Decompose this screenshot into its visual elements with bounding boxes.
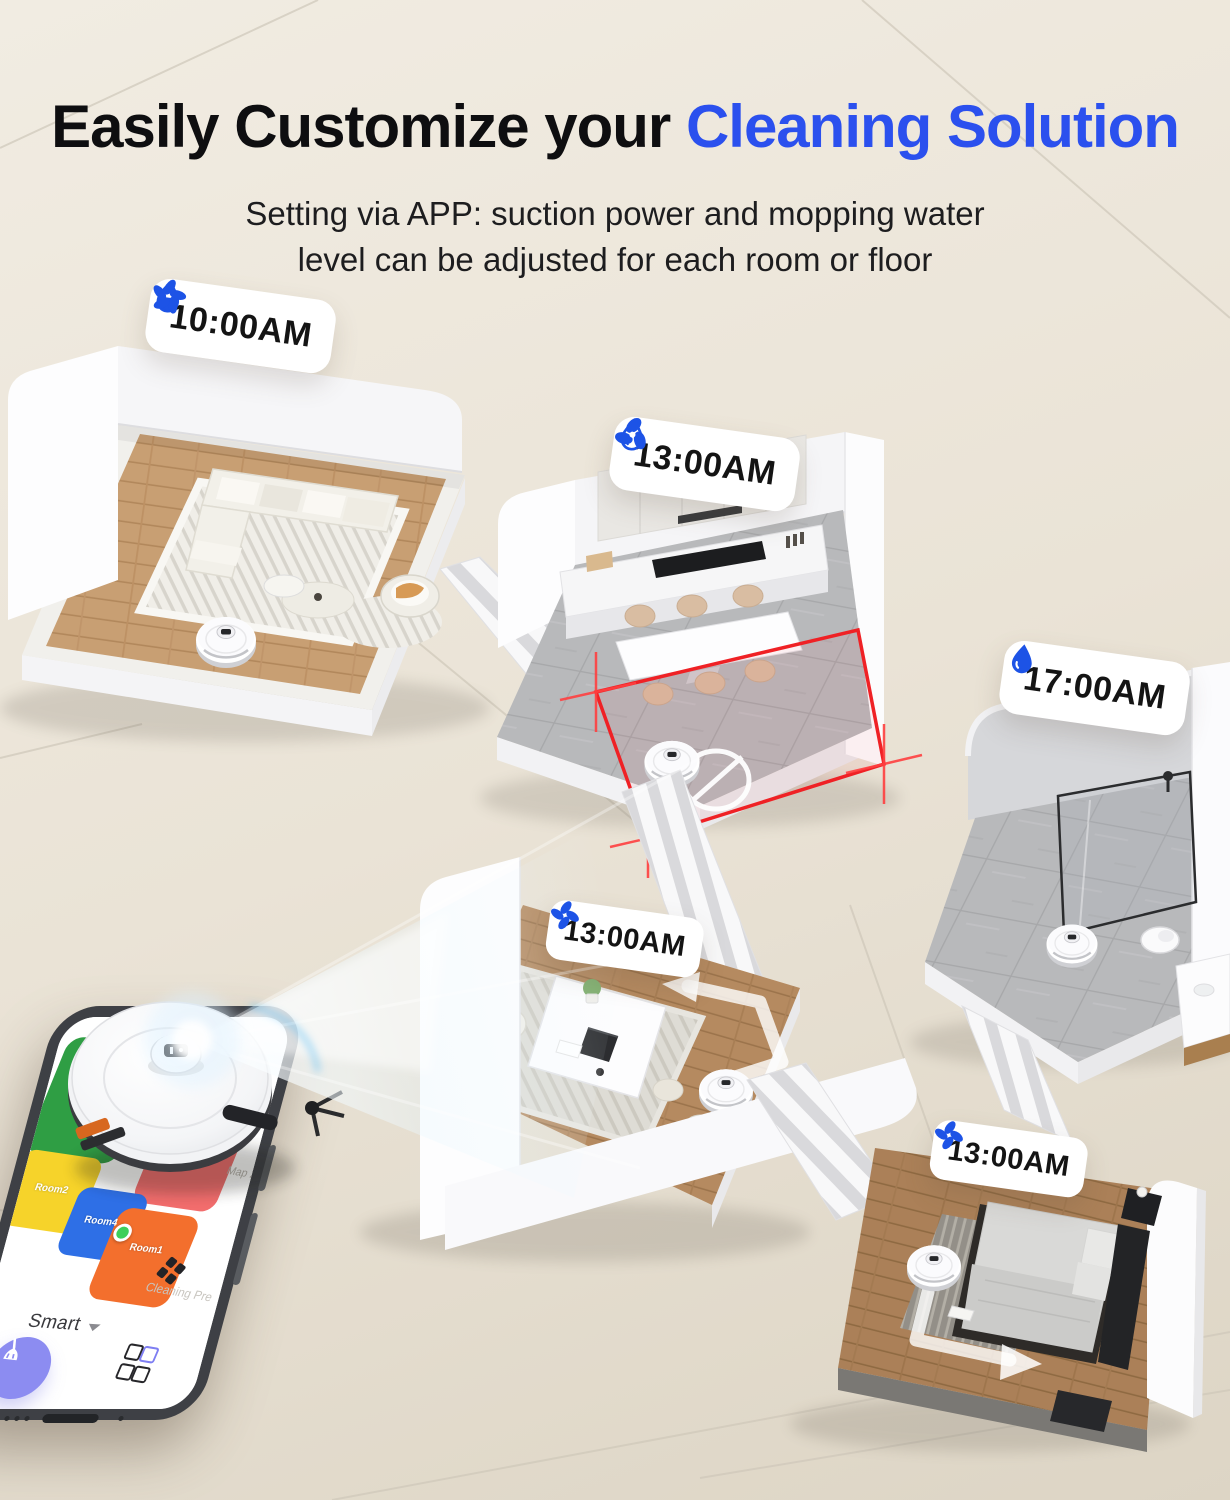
badge-time: 13:00AM <box>562 914 688 964</box>
power-button <box>257 1145 276 1191</box>
robot-vacuum-kitchen <box>644 741 699 788</box>
badge-time: 17:00AM <box>1021 659 1168 718</box>
subtitle-line-1: Setting via APP: suction power and moppi… <box>245 195 984 232</box>
no-go-zone <box>560 630 922 878</box>
title-blue: Cleaning Solution <box>686 93 1179 160</box>
sofa <box>186 469 398 578</box>
title-black: Easily Customize your <box>51 93 686 160</box>
apps-grid-icon[interactable] <box>115 1343 157 1383</box>
mode-label: Smart <box>25 1310 84 1335</box>
schedule-badge-kitchen: 13:00AM <box>607 414 803 513</box>
badge-time: 13:00AM <box>946 1134 1072 1184</box>
schedule-badge-office: 13:00AM <box>544 898 706 979</box>
robot-vacuum-office <box>699 1069 753 1115</box>
page-subtitle: Setting via APP: suction power and moppi… <box>0 191 1230 282</box>
shower-enclosure <box>1058 771 1196 934</box>
app-screen: Room3 Room7 Room5 Room2 Room4 Room1 Map … <box>0 1017 294 1409</box>
stairs-office-to-bedroom <box>747 1063 894 1220</box>
smartphone: Room3 Room7 Room5 Room2 Room4 Room1 Map … <box>0 1006 308 1420</box>
schedule-badge-bedroom: 13:00AM <box>928 1118 1090 1199</box>
bathroom-diorama <box>910 662 1230 1142</box>
robot-vacuum-bathroom <box>1047 924 1098 967</box>
stairs-bathroom-to-bedroom <box>962 1006 1072 1142</box>
clean-button[interactable] <box>0 1334 60 1402</box>
badge-time: 10:00AM <box>167 297 314 356</box>
chevron-down-icon <box>86 1324 100 1332</box>
stairs-kitchen-to-office <box>622 770 766 1012</box>
cleaning-path-arrow <box>916 1292 1042 1380</box>
robot-vacuum-bedroom <box>907 1245 961 1291</box>
office-chair <box>482 1007 526 1041</box>
robot-vacuum-living-room <box>196 617 256 668</box>
bedroom-diorama <box>790 1148 1206 1452</box>
subtitle-line-2: level can be adjusted for each room or f… <box>298 241 933 278</box>
schedule-badge-bathroom: 17:00AM <box>997 638 1193 737</box>
coffee-table <box>264 575 354 618</box>
kitchen-counter <box>560 525 828 639</box>
toilet <box>1141 927 1179 953</box>
clean-broom-icon <box>0 1334 30 1367</box>
mode-selector[interactable]: Smart <box>25 1310 104 1337</box>
stairs-living-to-kitchen <box>440 557 610 710</box>
side-brush <box>305 1092 344 1136</box>
living-room-diorama <box>0 346 610 742</box>
phone-body: Room3 Room7 Room5 Room2 Room4 Room1 Map … <box>0 1006 308 1420</box>
badge-time: 13:00AM <box>631 435 778 494</box>
bed <box>952 1202 1150 1370</box>
page-title: Easily Customize your Cleaning Solution <box>0 92 1230 161</box>
no-entry-icon <box>683 751 749 809</box>
armchair <box>381 575 439 617</box>
cleaning-path-arrow <box>662 972 782 1080</box>
desk <box>528 976 666 1098</box>
dining-table-chairs <box>616 585 802 705</box>
schedule-badge-living-room: 10:00AM <box>143 276 339 375</box>
vanity <box>1176 954 1230 1066</box>
charging-port <box>41 1414 99 1423</box>
product-infographic: Room3 Room7 Room5 Room2 Room4 Room1 Map … <box>0 0 1230 1500</box>
